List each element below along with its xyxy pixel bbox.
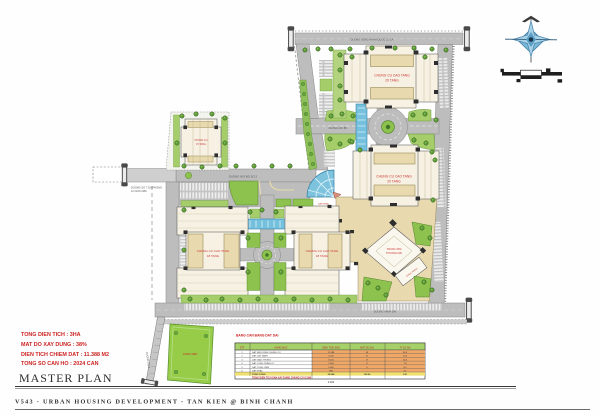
svg-text:18 TANG: 18 TANG [207, 254, 220, 258]
svg-text:BANG CAN BANG DAT DAI: BANG CAN BANG DAT DAI [236, 334, 279, 338]
svg-text:V543 - URBAN HOUSING DEVELOPME: V543 - URBAN HOUSING DEVELOPMENT - TAN K… [15, 399, 294, 406]
svg-text:TONG DIEN TICH SAN XAY DUNG CH: TONG DIEN TICH SAN XAY DUNG CHUNG CU (CA… [252, 376, 311, 379]
svg-text:MASTER PLAN: MASTER PLAN [19, 371, 112, 385]
svg-text:DUONG SONG HANH QUOC LO 1A: DUONG SONG HANH QUOC LO 1A [351, 37, 394, 41]
svg-text:CONG VIEN: CONG VIEN [183, 352, 198, 356]
svg-text:LO GIOI 20M: LO GIOI 20M [131, 189, 146, 193]
svg-text:CHUNG CU CAO TANG: CHUNG CU CAO TANG [376, 175, 412, 179]
svg-text:11.388: 11.388 [328, 352, 335, 354]
svg-text:TY LE (%): TY LE (%) [400, 346, 411, 349]
svg-text:DAT CAY XANH: DAT CAY XANH [252, 355, 268, 358]
svg-text:30.968: 30.968 [328, 374, 335, 376]
svg-text:2.400: 2.400 [328, 363, 334, 365]
svg-text:20 TANG: 20 TANG [387, 180, 401, 184]
svg-text:8.150: 8.150 [328, 359, 334, 361]
svg-text:CHUNG CU: CHUNG CU [195, 139, 208, 142]
svg-text:THUONG MAI: THUONG MAI [386, 252, 402, 255]
svg-text:HANG MUC: HANG MUC [274, 346, 287, 349]
svg-text:CHUNG CU CAO TANG: CHUNG CU CAO TANG [306, 249, 339, 253]
svg-text:DAT CONG VIEN: DAT CONG VIEN [252, 366, 269, 369]
svg-text:DAT CONG TRINH CC: DAT CONG TRINH CC [252, 362, 275, 365]
svg-text:6.200: 6.200 [328, 356, 334, 358]
svg-text:15 TANG: 15 TANG [196, 143, 206, 146]
svg-text:DUONG NOI BO SO 2: DUONG NOI BO SO 2 [229, 175, 258, 179]
svg-text:1.850: 1.850 [328, 367, 334, 369]
svg-text:STT: STT [240, 346, 245, 349]
svg-text:TONG SO CAN HO : 2024 CAN: TONG SO CAN HO : 2024 CAN [21, 361, 99, 367]
svg-text:SAN KHAU: SAN KHAU [318, 203, 330, 206]
svg-text:DIEN TICH (M2): DIEN TICH (M2) [322, 346, 340, 349]
svg-text:20 TANG: 20 TANG [385, 79, 399, 83]
svg-text:2.024: 2.024 [328, 380, 335, 384]
svg-text:DAT XAY DUNG CHUNG CU: DAT XAY DUNG CHUNG CU [252, 351, 281, 354]
svg-text:DIEN TICH CHIEM DAT : 11.388 M: DIEN TICH CHIEM DAT : 11.388 M2 [21, 352, 109, 358]
svg-text:DAT KHAC: DAT KHAC [252, 369, 263, 372]
svg-text:CHUNG CU CAO TANG: CHUNG CU CAO TANG [197, 249, 230, 253]
svg-text:DUONG SO 7 DU PHONG: DUONG SO 7 DU PHONG [131, 186, 162, 190]
svg-text:MAT DO XAY DUNG : 38%: MAT DO XAY DUNG : 38% [21, 342, 87, 348]
svg-text:DUONG NOI BO: DUONG NOI BO [329, 127, 348, 130]
svg-text:TRUNG TAM: TRUNG TAM [387, 248, 402, 251]
svg-text:TONG DIEN TICH : 3HA: TONG DIEN TICH : 3HA [21, 332, 81, 338]
svg-text:100.00: 100.00 [364, 374, 371, 376]
svg-text:CHUNG CU CAO TANG: CHUNG CU CAO TANG [374, 74, 410, 78]
svg-text:18 TANG: 18 TANG [316, 254, 329, 258]
svg-text:DAT GIAO THONG: DAT GIAO THONG [252, 358, 271, 361]
svg-text:MAT DO (%): MAT DO (%) [360, 346, 374, 349]
